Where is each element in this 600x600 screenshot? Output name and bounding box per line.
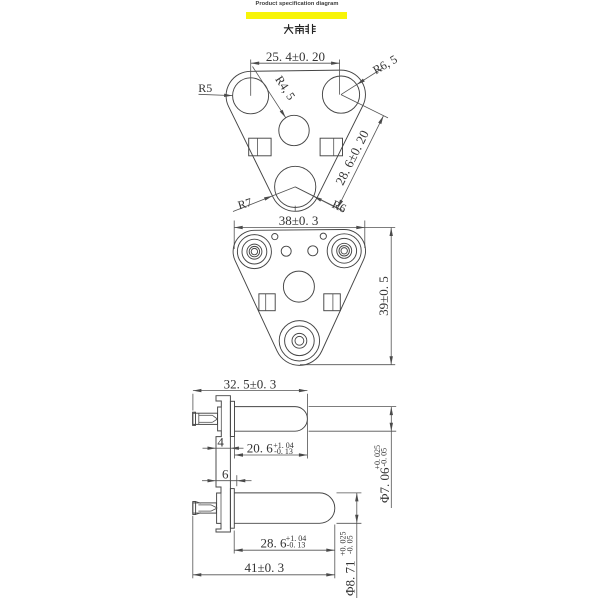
- svg-text:-0. 05: -0. 05: [380, 448, 389, 467]
- svg-text:32. 5±0. 3: 32. 5±0. 3: [224, 376, 277, 391]
- svg-text:R6, 5: R6, 5: [370, 52, 400, 77]
- svg-text:Φ8. 71: Φ8. 71: [343, 560, 358, 596]
- svg-text:41±0. 3: 41±0. 3: [244, 560, 284, 575]
- svg-text:28. 6: 28. 6: [261, 536, 288, 551]
- svg-text:R4, 5: R4, 5: [272, 73, 298, 102]
- svg-text:-0. 05: -0. 05: [345, 535, 354, 554]
- svg-text:Φ7. 06: Φ7. 06: [377, 467, 392, 503]
- svg-text:R7: R7: [236, 195, 253, 212]
- svg-text:4: 4: [217, 435, 224, 450]
- svg-text:R6: R6: [330, 197, 349, 216]
- svg-text:R5: R5: [198, 81, 212, 95]
- svg-text:25. 4±0. 20: 25. 4±0. 20: [266, 49, 325, 64]
- svg-text:-0. 13: -0. 13: [274, 447, 293, 456]
- svg-text:6: 6: [222, 467, 229, 482]
- svg-text:38±0. 3: 38±0. 3: [279, 213, 319, 228]
- svg-text:-0. 13: -0. 13: [287, 540, 306, 549]
- svg-text:39±0. 5: 39±0. 5: [376, 276, 391, 316]
- svg-text:20. 6: 20. 6: [247, 441, 274, 456]
